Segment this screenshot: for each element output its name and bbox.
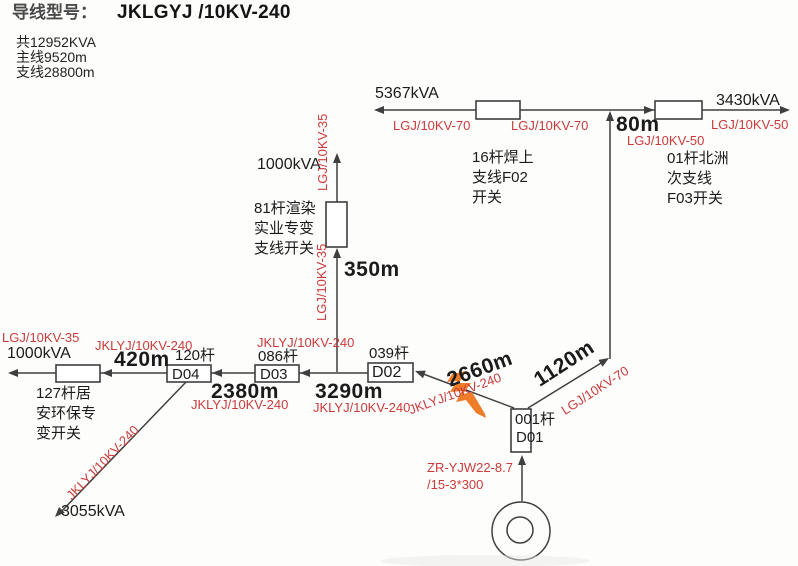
arrow-into-d03-icon: [300, 369, 310, 377]
page-title-value: JKLGYJ /10KV-240: [117, 2, 291, 24]
total-capacity: 共12952KVA: [16, 34, 96, 50]
arrow-riser-top-icon: [606, 111, 614, 121]
arrow-into-d04-icon: [212, 369, 222, 377]
distance-label-420m: 420m: [114, 348, 170, 372]
line-type-label: JKLYJ/10KV-240: [257, 336, 354, 351]
branch-line-length: 支线28800m: [16, 64, 95, 80]
arrow-into-d01-icon: [518, 455, 526, 465]
cable-spec-line1: ZR-YJW22-8.7: [427, 461, 513, 476]
arrow-top-left-icon: [374, 106, 384, 114]
line-type-label: LGJ/10KV-35: [2, 331, 79, 346]
switch-name-d03: D03: [260, 366, 288, 383]
line-type-label: LGJ/10KV-50: [627, 134, 704, 149]
switch-box-f03: [655, 101, 702, 119]
switch-description-127: 127杆居 安环保专 变开关: [36, 384, 96, 444]
switch-name-d01: D01: [516, 429, 544, 446]
line-type-label: LGJ/10KV-70: [393, 119, 470, 134]
kva-label-spur: 3055kVA: [61, 503, 125, 521]
pole-label-d02: 039杆: [369, 345, 409, 362]
switch-box-f02: [476, 101, 520, 119]
arrow-into-81-icon: [333, 248, 341, 258]
line-type-label: LGJ/10KV-70: [511, 119, 588, 134]
line-type-label: LGJ/10KV-50: [711, 118, 788, 133]
kva-label-left: 5367kVA: [375, 85, 439, 103]
switch-box-127: [56, 365, 100, 382]
distance-label-350m: 350m: [344, 258, 400, 282]
kva-label-right: 3430kVA: [716, 92, 780, 110]
arrow-into-riser-icon: [598, 358, 609, 367]
switch-name-d02: D02: [372, 364, 401, 382]
switch-name-d04: D04: [172, 366, 200, 383]
cable-spec-line2: /15-3*300: [427, 478, 483, 493]
arrow-into-d02-icon: [415, 371, 426, 379]
arrow-into-127-icon: [102, 369, 112, 377]
arrow-main-end-icon: [8, 369, 18, 377]
arrow-top-right-icon: [780, 106, 790, 114]
line-type-label: JKLYJ/10KV-240: [191, 398, 288, 413]
main-line-length: 主线9520m: [16, 49, 87, 65]
switch-box-81: [326, 202, 347, 247]
switch-description-81: 81杆渲染 实业专变 支线开关: [254, 199, 316, 259]
switch-description-f03: 01杆北洲 次支线 F03开关: [667, 149, 729, 209]
scan-shadow: [380, 555, 590, 566]
pole-label-d04: 120杆: [175, 347, 215, 364]
source-circle-outer: [492, 502, 550, 560]
arrow-center-top-icon: [333, 153, 341, 163]
kva-label-end: 1000kVA: [7, 345, 71, 363]
line-type-label: JKLYJ/10KV-240: [313, 401, 410, 416]
switch-description-f02: 16杆焊上 支线F02 开关: [472, 148, 534, 208]
line-type-label-vertical: LGJ/10KV-35: [316, 114, 331, 191]
line-type-label-vertical: LGJ/10KV-35: [315, 244, 330, 321]
kva-label-center: 1000kVA: [257, 156, 321, 174]
distribution-line-diagram: 导线型号： JKLGYJ /10KV-240 共12952KVA 主线9520m…: [0, 0, 798, 566]
page-title-label: 导线型号：: [12, 3, 97, 23]
pole-label-d01: 001杆: [515, 411, 555, 428]
